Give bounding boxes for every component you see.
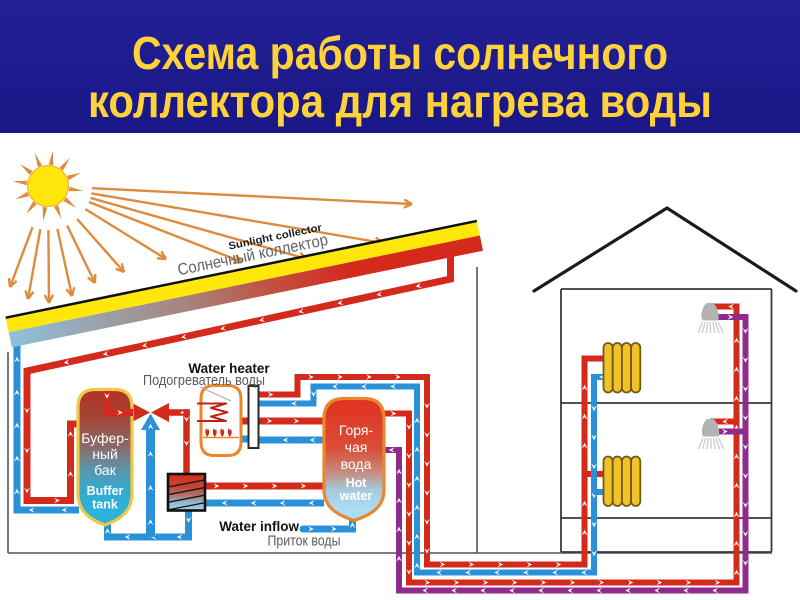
svg-text:Hot: Hot	[346, 476, 368, 490]
svg-text:Схема работы солнечного: Схема работы солнечного	[132, 27, 668, 79]
svg-text:бак: бак	[94, 462, 116, 478]
svg-text:ный: ный	[92, 446, 118, 462]
svg-text:чая: чая	[345, 439, 368, 455]
svg-text:Горя-: Горя-	[339, 422, 374, 438]
svg-text:вода: вода	[341, 456, 372, 472]
svg-text:water: water	[339, 489, 373, 503]
svg-text:tank: tank	[92, 498, 118, 512]
svg-text:Подогреватель воды: Подогреватель воды	[143, 372, 265, 389]
svg-text:Буфер-: Буфер-	[81, 430, 129, 446]
svg-text:коллектора для нагрева воды: коллектора для нагрева воды	[88, 75, 712, 127]
svg-text:Buffer: Buffer	[87, 484, 124, 498]
svg-text:Приток воды: Приток воды	[268, 533, 341, 550]
